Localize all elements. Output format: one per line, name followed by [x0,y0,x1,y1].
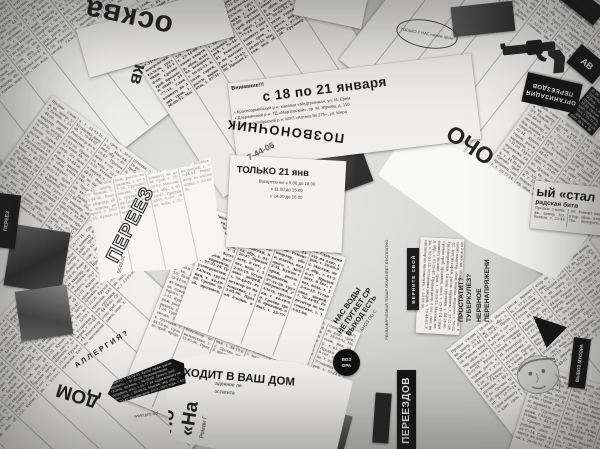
dark-photo-fragment [15,285,73,342]
oval-stamp-text: ТОЛЬКО У НАС низкие цены [400,27,453,41]
treatment-line2: остатита [214,388,235,396]
vyvoz-musora-text: ВЫВОЗ МУСОРА [575,344,585,383]
pereezdov-band: ПЕРЕЕЗДОВ [397,370,416,449]
treatment-lines: аденное леостатита [210,381,242,443]
reklam-text: РЕКЛАМИРУЕМЫЙ ТОВАР ОБМЕНЯЕТ БЕСПЛАТНО [384,246,389,340]
nervnoe-text: НЕРВНОЕ ПЕРЕНАПРЯЖЕНИ [476,240,492,322]
prostatit-text: ПРОСТАТИТ? ТУБЕРКУЛЕЗ? [458,240,474,322]
vernite-band: ВЕРНИТЕ СВОЙ [407,248,419,310]
steel-headline-scrap: ый «стал радская битв Продам 2-комн. кв.… [530,180,600,235]
pereezdov-text: ПЕРЕЕЗДОВ [401,377,412,444]
round-stamp: ВОЗ ОРА [333,349,360,376]
vernite-text: ВЕРНИТЕ СВОЙ [411,255,416,304]
prostatit-vertical-headline: ПРОСТАТИТ? ТУБЕРКУЛЕЗ? НЕРВНОЕ ПЕРЕНАПРЯ… [458,240,488,322]
av-label-text: АВ [579,56,595,72]
reklam-vertical-line: РЕКЛАМИРУЕМЫЙ ТОВАР ОБМЕНЯЕТ БЕСПЛАТНО [384,246,395,340]
face-sketch-photo [503,344,576,405]
stamp-line2: ОРА [342,363,351,369]
tolko-ad-scrap: ТОЛЬКО 21 янв Воскресенье с 9.00 до 18.0… [226,155,347,253]
dark-strip [372,393,391,444]
left-band-text: ПЕРЕЕЗ [3,211,11,232]
newspaper-collage-photo: Продам 2-комн. кв., центр, 5/9, балкон, … [0,0,600,449]
face-sketch-icon [503,344,576,405]
